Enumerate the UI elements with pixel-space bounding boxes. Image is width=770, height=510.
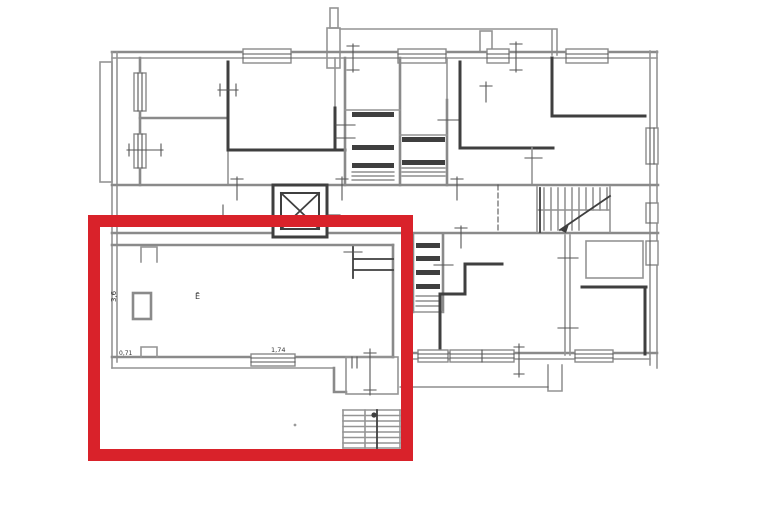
roof-block-small — [330, 8, 338, 28]
left-loggia — [100, 62, 112, 182]
dimension-tick — [514, 344, 524, 377]
highlighted-unit: 3,6 Ē 0,71 1,74 — [110, 245, 400, 448]
left-wing-rooms — [127, 58, 345, 185]
dimension-tick — [558, 258, 578, 328]
wall-notch — [141, 247, 157, 262]
roof-block — [327, 28, 340, 68]
right-wing-upper-rooms — [460, 58, 645, 185]
dim-label-left: 3,6 — [110, 290, 118, 302]
floor-plan-svg: 3,6 Ē 0,71 1,74 — [0, 0, 770, 510]
right-wing-lower-rooms — [413, 235, 646, 377]
room-label: Ē — [195, 291, 200, 301]
floor-plan-image: 3,6 Ē 0,71 1,74 — [0, 0, 770, 510]
dimension-tick — [510, 42, 522, 72]
bathroom-core — [336, 58, 458, 185]
dim-label-bottom-left: 0,71 — [119, 350, 133, 357]
stair-direction-arrow — [560, 196, 610, 230]
exterior-staircase — [343, 410, 400, 448]
dimension-tick — [480, 82, 492, 102]
dim-label-bottom: 1,74 — [271, 346, 285, 354]
wall-notch — [141, 347, 157, 357]
building-outline — [100, 8, 658, 391]
main-staircase — [537, 187, 610, 233]
closet — [586, 241, 643, 278]
stair-post — [371, 412, 376, 417]
door-tick — [231, 177, 463, 200]
elevator-shaft — [273, 185, 340, 237]
floor-plan-page: 3,6 Ē 0,71 1,74 — [0, 0, 770, 510]
niche — [344, 247, 393, 278]
speck — [294, 424, 297, 427]
window-icon — [251, 354, 295, 366]
pillar — [133, 293, 151, 319]
corridor — [112, 177, 658, 248]
bottom-protrusion — [548, 365, 562, 391]
